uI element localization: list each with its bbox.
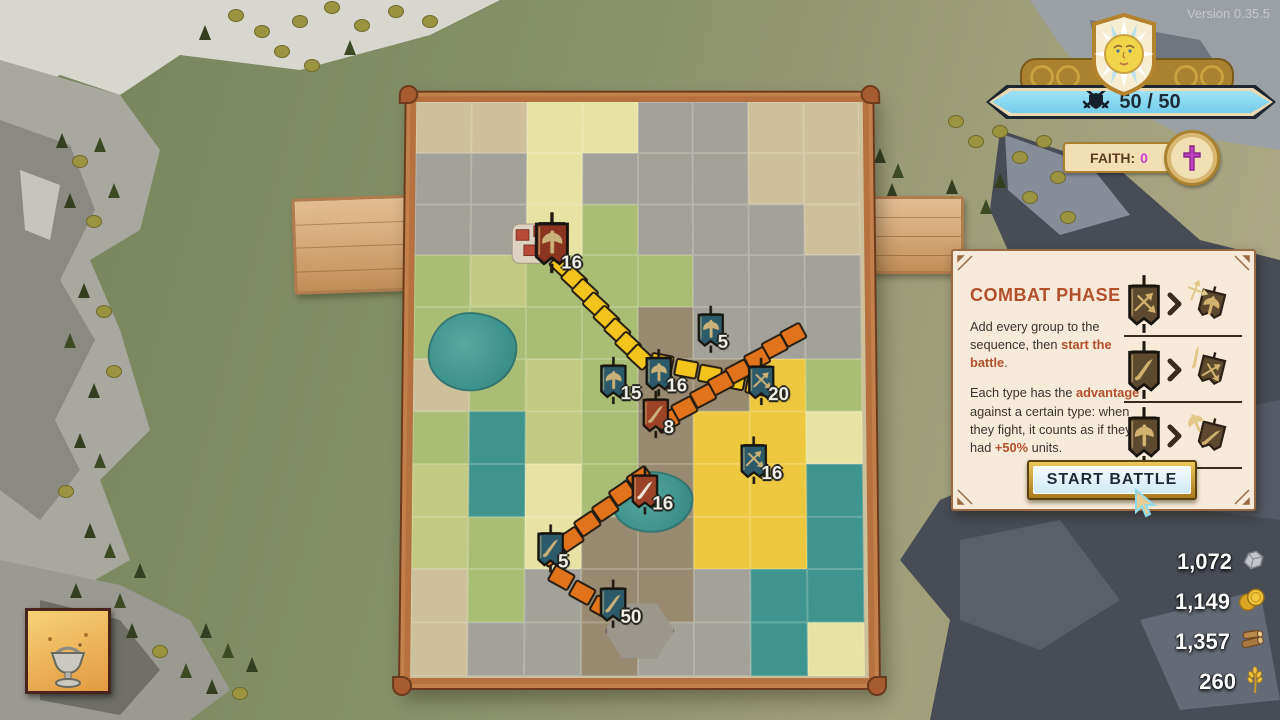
map-tile[interactable] [525,359,581,411]
matchup-sword-beats-arrows [1124,339,1242,403]
chevron-right-icon [1166,358,1183,382]
army-banner-axe[interactable]: 15 [596,357,630,409]
bush [292,15,308,28]
map-tile[interactable] [410,623,467,676]
pine-tree [104,543,116,558]
resource-stone: 1,072 [1086,542,1266,582]
pine-tree [64,193,76,208]
chevron-right-icon [1166,292,1183,316]
map-tile[interactable] [748,102,804,153]
map-tile[interactable] [526,307,582,359]
banner-unit-count: 20 [768,385,789,406]
resource-wood: 1,357 [1086,622,1266,662]
sun-shield-emblem [1086,12,1162,96]
bush [304,59,320,72]
army-banner-axe[interactable]: 5 [694,305,728,357]
bush [1012,151,1028,164]
bush [58,485,74,498]
pine-tree [84,523,96,538]
map-tile[interactable] [581,411,637,463]
bush [948,115,964,128]
map-tile[interactable] [412,411,469,463]
pine-tree [74,433,86,448]
gold-icon [1238,587,1266,618]
banner-unit-count: 5 [718,332,728,353]
board-corner-ornament [392,676,412,696]
pine-tree [94,137,106,152]
map-tile[interactable] [751,623,808,676]
bush [228,9,244,22]
pine-tree [874,148,886,163]
pine-tree [108,183,120,198]
army-banner-arrows[interactable]: 20 [744,358,778,410]
bush [1022,191,1038,204]
bush [96,305,112,318]
map-tile[interactable] [638,256,694,308]
bush [1060,211,1076,224]
game-screen: 16 15 16 5 20 8 16 [0,0,1280,720]
map-tile[interactable] [806,359,863,411]
bush [232,687,248,700]
bush [388,5,404,18]
panel-instruction-2: Each type has the advantage against a ce… [970,384,1146,457]
map-tile[interactable] [415,204,471,255]
map-tile[interactable] [638,204,694,255]
pine-tree [56,133,68,148]
matchup-arrows-beats-axe [1124,273,1242,337]
map-tile[interactable] [694,516,751,569]
map-tile[interactable] [468,516,525,569]
map-tile[interactable] [694,623,751,676]
bush [106,365,122,378]
resource-list: 1,0721,1491,357260 [1086,542,1266,702]
map-tile[interactable] [749,204,805,255]
cross-icon [1181,144,1203,172]
bush [324,1,340,14]
banner-unit-count: 16 [561,253,582,274]
army-banner-sword[interactable]: 5 [534,525,568,578]
resource-amount: 1,149 [1175,589,1230,615]
map-tile[interactable] [693,204,749,255]
map-tile[interactable] [694,569,751,622]
map-tile[interactable] [748,153,804,204]
pine-tree [892,163,904,178]
banner-unit-count: 15 [621,384,642,405]
pine-tree [344,40,356,55]
bush [354,19,370,32]
mouse-cursor [1133,488,1157,523]
banner-unit-count: 50 [620,607,641,629]
pine-tree [206,679,218,694]
bush [968,135,984,148]
bush [274,45,290,58]
board-corner-ornament [861,85,881,104]
map-tile[interactable] [749,256,805,308]
map-tile[interactable] [411,516,468,569]
map-tiles: 16 15 16 5 20 8 16 [410,102,869,678]
resource-amount: 1,072 [1177,549,1232,575]
combat-phase-panel: COMBAT PHASE Add every group to the sequ… [951,249,1256,511]
map-tile[interactable] [808,623,865,676]
bush [1036,135,1052,148]
map-tile[interactable] [806,411,863,463]
pine-tree [78,283,90,298]
resource-wheat: 260 [1086,662,1266,702]
pine-tree [946,179,958,194]
map-tile[interactable] [526,153,582,204]
version-label: Version 0.35.5 [1187,6,1270,21]
pine-tree [88,383,100,398]
map-tile[interactable] [638,153,694,204]
army-banner-sword[interactable]: 8 [639,391,673,444]
banner-unit-count: 16 [761,464,782,486]
banner-unit-count: 16 [652,494,673,516]
stone-icon [1240,547,1266,578]
banner-unit-count: 8 [664,418,674,439]
wheat-icon [1244,666,1266,699]
map-tile[interactable] [411,569,468,622]
army-banner-arrows[interactable]: 16 [737,436,771,489]
map-tile[interactable] [582,102,637,153]
pine-tree [114,593,126,608]
map-tile[interactable] [693,256,749,308]
event-thumbnail[interactable] [25,608,111,694]
map-tile[interactable] [468,464,525,517]
army-banner-sword[interactable]: 50 [596,580,630,633]
pine-tree [980,199,992,214]
army-banner-sword[interactable]: 16 [628,467,662,520]
map-tile[interactable] [416,102,472,153]
map-tile[interactable] [467,623,524,676]
pine-tree [994,173,1006,188]
pine-tree [64,333,76,348]
map-tile[interactable] [807,516,864,569]
map-tile[interactable] [804,153,860,204]
bush [86,215,102,228]
pine-tree [222,643,234,658]
banner-unit-count: 5 [558,552,569,574]
map-tile[interactable] [750,516,807,569]
pine-tree [199,25,211,40]
map-tile[interactable] [525,464,582,517]
pine-tree [94,453,106,468]
map-tile[interactable] [806,464,863,517]
board-corner-ornament [867,676,887,696]
bush [254,25,270,38]
map-tile[interactable] [693,153,749,204]
map-tile[interactable] [805,307,861,359]
map-tile[interactable] [471,153,527,204]
map-tile[interactable] [412,464,469,517]
faith-counter: FAITH: 0 [1063,142,1175,173]
map-tile[interactable] [693,102,749,153]
map-tile[interactable] [804,204,860,255]
map-tile[interactable] [527,102,583,153]
pine-tree [126,623,138,638]
pine-tree [246,657,258,672]
army-banner-axe[interactable]: 16 [530,212,573,278]
panel-instruction-1: Add every group to the sequence, then st… [970,318,1146,372]
bush [72,155,88,168]
pine-tree [134,563,146,578]
wood-icon [1238,627,1266,658]
map-tile[interactable] [471,102,527,153]
matchup-diagram [1124,273,1242,471]
pine-tree [180,663,192,678]
map-tile[interactable] [415,153,471,204]
map-tile[interactable] [582,153,638,204]
map-tile[interactable] [751,569,808,622]
chevron-right-icon [1166,424,1183,448]
faith-value: 0 [1140,150,1148,166]
start-battle-button[interactable]: START BATTLE [1027,460,1197,500]
pine-tree [70,583,82,598]
map-tile[interactable] [582,204,638,255]
resource-gold: 1,149 [1086,582,1266,622]
pine-tree [200,623,212,638]
map-tile[interactable] [525,411,581,463]
faith-medallion[interactable] [1164,130,1220,186]
map-tile[interactable] [807,569,864,622]
bush [1050,171,1066,184]
resource-amount: 1,357 [1175,629,1230,655]
map-tile[interactable] [467,569,524,622]
map-tile[interactable] [638,102,693,153]
resource-amount: 260 [1199,669,1236,695]
map-tile[interactable] [469,411,526,463]
goblet-icon [40,625,96,691]
game-board[interactable]: 16 15 16 5 20 8 16 [398,91,881,690]
map-tile[interactable] [414,256,470,308]
bush [992,125,1008,138]
bush [422,15,438,28]
map-tile[interactable] [804,102,860,153]
faith-label: FAITH: [1090,150,1135,166]
start-battle-label: START BATTLE [1033,466,1191,494]
map-tile[interactable] [805,256,861,308]
map-tile[interactable] [524,623,581,676]
bush [152,645,168,658]
